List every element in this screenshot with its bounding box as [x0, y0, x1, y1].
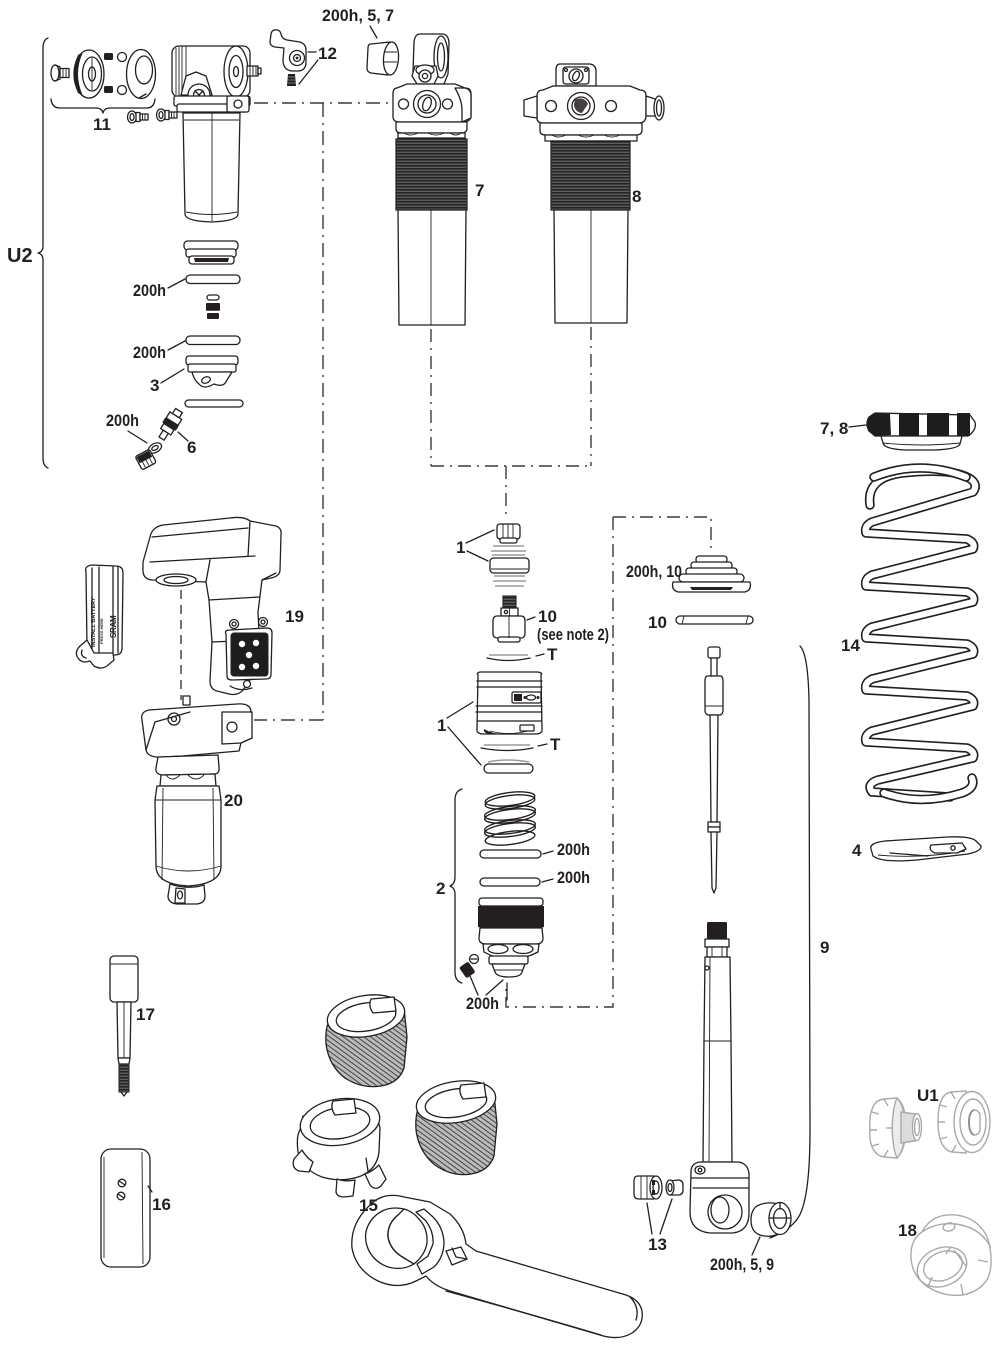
svg-text:U2: U2 — [7, 245, 33, 267]
svg-text:T: T — [547, 645, 558, 664]
svg-text:200h, 10: 200h, 10 — [626, 562, 682, 581]
svg-text:10: 10 — [538, 607, 557, 626]
svg-text:15: 15 — [359, 1196, 378, 1215]
svg-text:200h: 200h — [466, 994, 499, 1013]
svg-text:19: 19 — [285, 607, 304, 626]
svg-text:20: 20 — [224, 791, 243, 810]
svg-text:200h, 5, 7: 200h, 5, 7 — [322, 6, 394, 25]
svg-text:200h: 200h — [557, 868, 590, 887]
svg-text:18: 18 — [898, 1221, 917, 1240]
svg-text:PRESS HERE: PRESS HERE — [99, 618, 104, 644]
svg-text:INSTALL BATTERY: INSTALL BATTERY — [91, 597, 97, 647]
svg-text:200h: 200h — [133, 281, 166, 300]
svg-text:10: 10 — [648, 613, 667, 632]
svg-text:SRAM: SRAM — [109, 615, 118, 638]
svg-text:4: 4 — [852, 841, 862, 860]
svg-text:16: 16 — [152, 1195, 171, 1214]
svg-text:200h, 5, 9: 200h, 5, 9 — [710, 1255, 774, 1274]
svg-text:1: 1 — [456, 538, 465, 557]
svg-text:3: 3 — [150, 376, 159, 395]
svg-text:14: 14 — [841, 636, 860, 655]
svg-text:200h: 200h — [133, 343, 166, 362]
svg-text:200h: 200h — [106, 411, 139, 430]
svg-text:2: 2 — [436, 879, 445, 898]
svg-text:8: 8 — [632, 187, 641, 206]
svg-text:200h: 200h — [557, 840, 590, 859]
svg-text:(see note 2): (see note 2) — [537, 625, 609, 644]
svg-text:11: 11 — [93, 115, 111, 134]
svg-text:17: 17 — [136, 1005, 155, 1024]
svg-text:7, 8: 7, 8 — [820, 419, 848, 438]
svg-text:T: T — [550, 735, 561, 754]
svg-text:U1: U1 — [917, 1086, 939, 1105]
svg-text:12: 12 — [318, 44, 337, 63]
svg-text:1: 1 — [437, 716, 446, 735]
svg-text:9: 9 — [820, 938, 829, 957]
svg-text:13: 13 — [648, 1235, 667, 1254]
svg-text:7: 7 — [475, 181, 484, 200]
